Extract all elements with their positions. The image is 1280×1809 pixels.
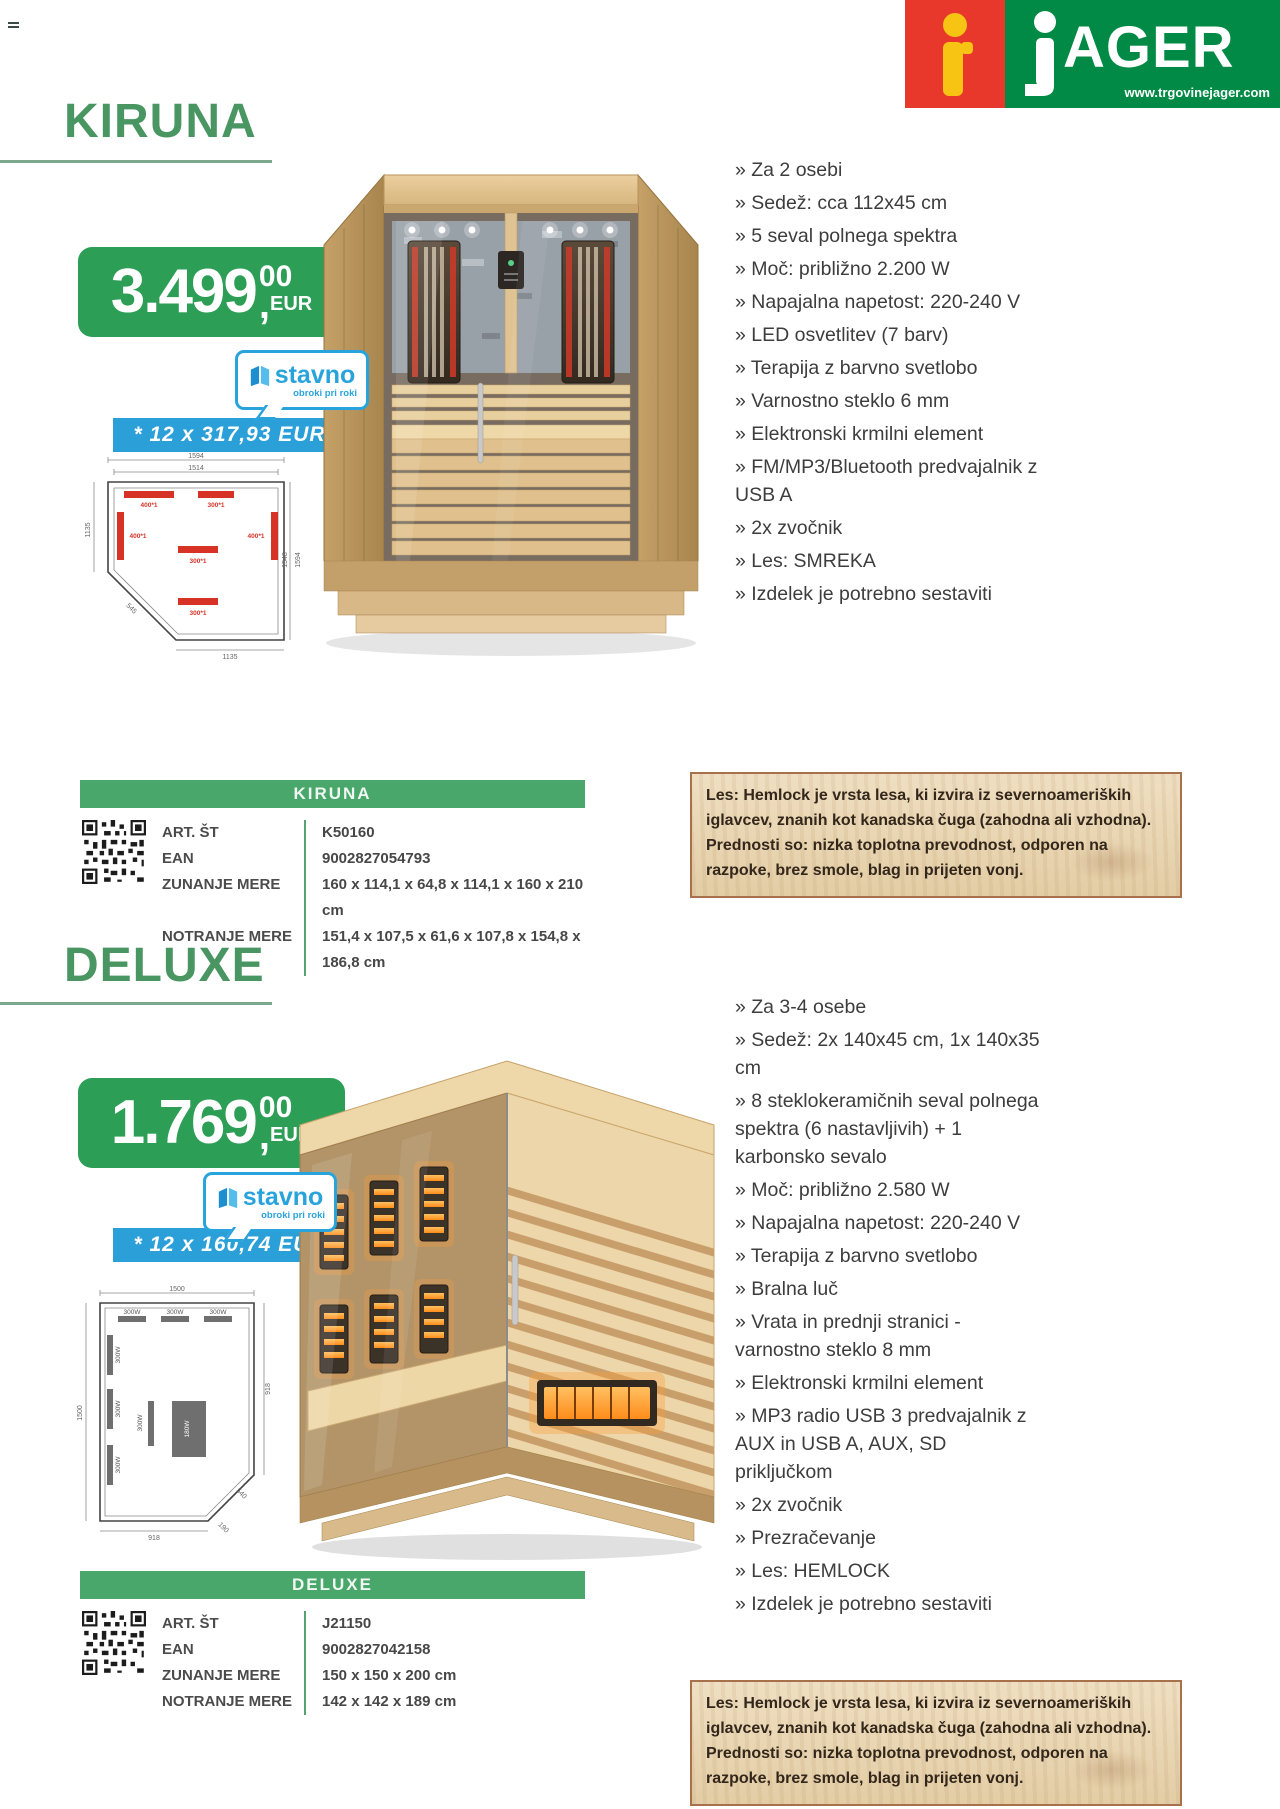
feature-item: » Terapija z barvno svetlobo (735, 354, 1047, 382)
plan-dim-label: 540 (234, 1487, 247, 1500)
menu-icon (8, 22, 19, 30)
book-icon (217, 1187, 239, 1209)
feature-item: » Les: SMREKA (735, 547, 1047, 575)
spec-label: ZUNANJE MERE (162, 872, 304, 924)
plan-dim-label: 1594 (188, 453, 204, 460)
price-comma: , (259, 294, 270, 316)
plan-heater-label: 300W (115, 1400, 122, 1418)
stavno-tagline: obroki pri roki (261, 1210, 325, 1221)
plan-heater-label: 300W (210, 1309, 228, 1316)
wood-info-text: Les: Hemlock je vrsta lesa, ki izvira iz… (706, 787, 1151, 879)
stavno-tagline: obroki pri roki (293, 388, 357, 399)
price-main: 3.499 (111, 261, 256, 323)
spec-value: 160 x 114,1 x 64,8 x 114,1 x 160 x 210 c… (304, 872, 585, 924)
spec-value: 150 x 150 x 200 cm (304, 1663, 585, 1689)
feature-item: » Varnostno steklo 6 mm (735, 387, 1047, 415)
product-title-kiruna: KIRUNA (64, 94, 257, 149)
spec-label: EAN (162, 846, 304, 872)
stavno-badge: stavno obroki pri roki (235, 350, 369, 410)
stavno-badge: stavno obroki pri roki (203, 1172, 337, 1232)
stavno-wordmark: stavno (275, 361, 356, 390)
feature-list-deluxe: » Za 3-4 osebe» Sedež: 2x 140x45 cm, 1x … (735, 993, 1047, 1623)
plan-heater-label: 300W (137, 1414, 144, 1432)
spec-value: 151,4 x 107,5 x 61,6 x 107,8 x 154,8 x 1… (304, 924, 585, 976)
spec-table-deluxe: DELUXE ART. ŠT J21150 EAN 9002827042158 (80, 1571, 585, 1715)
plan-dim-label: 1135 (222, 654, 237, 661)
wood-info-box: Les: Hemlock je vrsta lesa, ki izvira iz… (690, 772, 1182, 898)
plan-heater-label: 300*1 (190, 610, 207, 617)
feature-item: » Prezračevanje (735, 1524, 1047, 1552)
product-title-deluxe: DELUXE (64, 938, 265, 993)
spec-row: EAN 9002827042158 (162, 1637, 585, 1663)
jager-logo: AGER www.trgovinejager.com (905, 0, 1280, 108)
plan-dim-label: 190 (216, 1521, 229, 1534)
plan-heater-label: 300W (124, 1309, 142, 1316)
wood-info-box: Les: Hemlock je vrsta lesa, ki izvira iz… (690, 1680, 1182, 1806)
feature-item: » Moč: približno 2.580 W (735, 1176, 1047, 1204)
logo-person-white-icon (1019, 10, 1065, 98)
spec-label: ART. ŠT (162, 1611, 304, 1637)
feature-item: » Sedež: 2x 140x45 cm, 1x 140x35 cm (735, 1026, 1047, 1082)
qr-code (82, 1611, 146, 1675)
feature-item: » 2x zvočnik (735, 1491, 1047, 1519)
spec-value: 9002827042158 (304, 1637, 585, 1663)
spec-table-title: DELUXE (80, 1571, 585, 1599)
plan-heater-label: 400*1 (130, 533, 147, 540)
deluxe-product-image (282, 1045, 732, 1565)
plan-heater-label: 400*1 (141, 502, 158, 509)
spec-value: J21150 (304, 1611, 585, 1637)
plan-dim-label: 1135 (85, 522, 92, 537)
wood-info-text: Les: Hemlock je vrsta lesa, ki izvira iz… (706, 1695, 1151, 1787)
catalog-page: AGER www.trgovinejager.com KIRUNA 3.499 … (0, 0, 1280, 1809)
plan-dim-label: 918 (148, 1535, 160, 1542)
feature-list-kiruna: » Za 2 osebi» Sedež: cca 112x45 cm» 5 se… (735, 156, 1047, 613)
book-icon (249, 365, 271, 387)
feature-item: » Napajalna napetost: 220-240 V (735, 1209, 1047, 1237)
feature-item: » Elektronski krmilni element (735, 420, 1047, 448)
spec-value: 9002827054793 (304, 846, 585, 872)
plan-heater-label: 300W (167, 1309, 185, 1316)
kiruna-product-image (312, 133, 710, 663)
feature-item: » Les: HEMLOCK (735, 1557, 1047, 1585)
spec-table-title: KIRUNA (80, 780, 585, 808)
spec-label: NOTRANJE MERE (162, 1689, 304, 1715)
qr-code (82, 820, 146, 884)
feature-item: » Moč: približno 2.200 W (735, 255, 1047, 283)
plan-dim-label: 1548 (282, 552, 289, 568)
logo-website-url: www.trgovinejager.com (1125, 85, 1270, 100)
logo-person-yellow-icon (933, 12, 977, 98)
price-main: 1.769 (111, 1092, 256, 1154)
plan-dim-label: 545 (124, 602, 137, 615)
price-currency: EUR (270, 294, 312, 314)
feature-item: » Vrata in prednji stranici - varnostno … (735, 1308, 1047, 1364)
plan-dim-label: 1500 (169, 1286, 185, 1293)
plan-heater-label: 180W (184, 1420, 191, 1438)
feature-item: » Izdelek je potrebno sestaviti (735, 580, 1047, 608)
stavno-wordmark: stavno (243, 1183, 324, 1212)
kiruna-floor-plan: 400*1 300*1 400*1 400*1 300*1 300*1 1594… (78, 450, 308, 662)
plan-dim-label: 918 (265, 1383, 272, 1395)
feature-item: » Bralna luč (735, 1275, 1047, 1303)
feature-item: » 8 steklokeramičnih seval polnega spekt… (735, 1087, 1047, 1171)
spec-row: ZUNANJE MERE 160 x 114,1 x 64,8 x 114,1 … (162, 872, 585, 924)
spec-value: K50160 (304, 820, 585, 846)
feature-item: » FM/MP3/Bluetooth predvajalnik z USB A (735, 453, 1047, 509)
feature-item: » 5 seval polnega spektra (735, 222, 1047, 250)
feature-item: » Za 2 osebi (735, 156, 1047, 184)
feature-item: » 2x zvočnik (735, 514, 1047, 542)
price-comma: , (259, 1125, 270, 1147)
title-underline (0, 1002, 272, 1005)
deluxe-floor-plan: 300W 300W 300W 300W 300W 300W 180W 300W … (72, 1283, 282, 1573)
plan-dim-label: 1514 (188, 465, 204, 472)
plan-heater-label: 300W (115, 1346, 122, 1364)
price-badge-kiruna: 3.499 00 , EUR (78, 247, 345, 337)
plan-heater-label: 300*1 (208, 502, 225, 509)
spec-row: ZUNANJE MERE 150 x 150 x 200 cm (162, 1663, 585, 1689)
logo-green-panel: AGER www.trgovinejager.com (1005, 0, 1280, 108)
spec-label: ZUNANJE MERE (162, 1663, 304, 1689)
spec-row: EAN 9002827054793 (162, 846, 585, 872)
plan-heater-label: 400*1 (248, 533, 265, 540)
plan-dim-label: 1500 (77, 1405, 84, 1421)
spec-row: ART. ŠT K50160 (162, 820, 585, 846)
feature-item: » Elektronski krmilni element (735, 1369, 1047, 1397)
spec-row: NOTRANJE MERE 142 x 142 x 189 cm (162, 1689, 585, 1715)
feature-item: » Terapija z barvno svetlobo (735, 1242, 1047, 1270)
logo-brand-text: AGER (1063, 14, 1235, 81)
feature-item: » Napajalna napetost: 220-240 V (735, 288, 1047, 316)
feature-item: » LED osvetlitev (7 barv) (735, 321, 1047, 349)
plan-dim-label: 1594 (295, 552, 302, 568)
plan-heater-label: 300*1 (190, 558, 207, 565)
spec-value: 142 x 142 x 189 cm (304, 1689, 585, 1715)
feature-item: » Sedež: cca 112x45 cm (735, 189, 1047, 217)
spec-label: ART. ŠT (162, 820, 304, 846)
feature-item: » Izdelek je potrebno sestaviti (735, 1590, 1047, 1618)
spec-label: EAN (162, 1637, 304, 1663)
feature-item: » MP3 radio USB 3 predvajalnik z AUX in … (735, 1402, 1047, 1486)
spec-row: ART. ŠT J21150 (162, 1611, 585, 1637)
feature-item: » Za 3-4 osebe (735, 993, 1047, 1021)
title-underline (0, 160, 272, 163)
plan-heater-label: 300W (115, 1456, 122, 1474)
logo-red-panel (905, 0, 1005, 108)
spec-rows: ART. ŠT J21150 EAN 9002827042158 ZUNANJE… (162, 1611, 585, 1715)
